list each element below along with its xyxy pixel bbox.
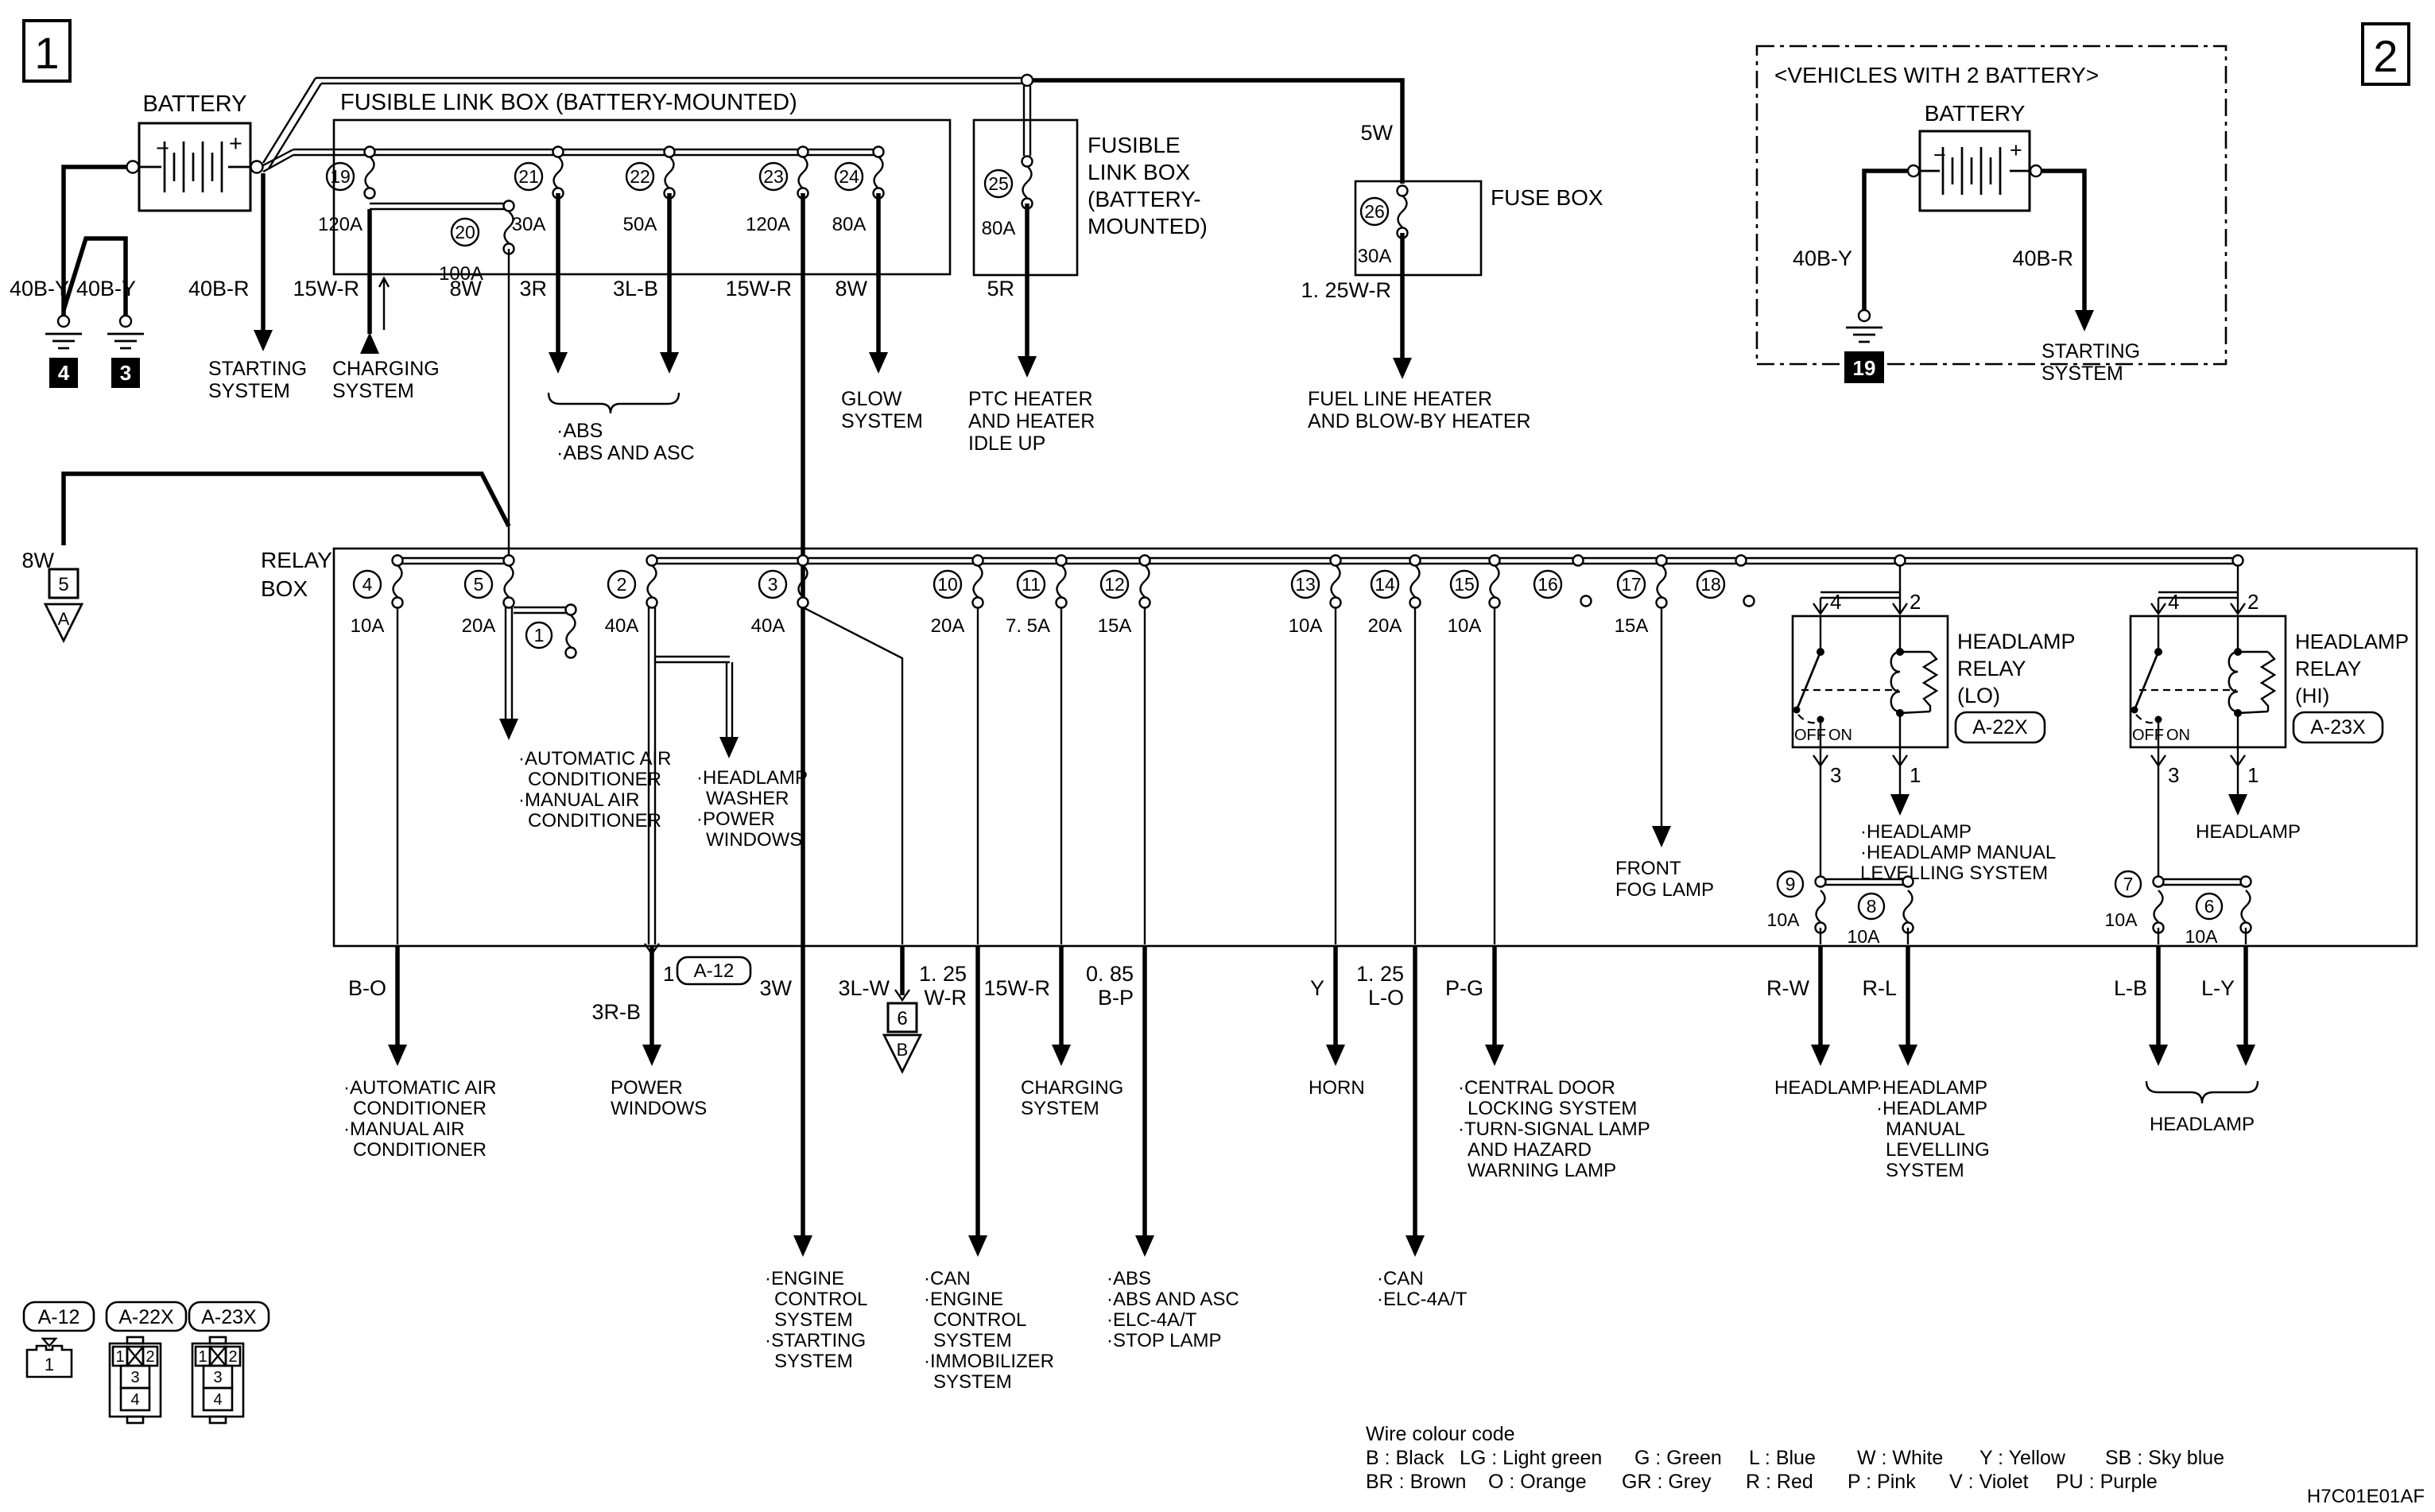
- wire-label: 3L-B: [613, 277, 658, 300]
- system-label: HEADLAMP: [2196, 821, 2301, 843]
- arrow-icon: [2228, 794, 2247, 816]
- system-label: ·ELC-4A/T: [1107, 1309, 1197, 1331]
- page-number: 2: [2373, 31, 2398, 81]
- box-title: LINK BOX: [1088, 160, 1190, 184]
- system-label: FOG LAMP: [1615, 879, 1714, 901]
- system-label: FUEL LINE HEATER: [1308, 388, 1492, 410]
- wire-label: 15W-R: [725, 277, 792, 300]
- fuse-number: 25: [988, 173, 1009, 194]
- wire-label: 40B-R: [2012, 246, 2073, 270]
- system-label: CHARGING: [1021, 1077, 1123, 1099]
- box-title: MOUNTED): [1088, 214, 1208, 238]
- wire-label: 3L-W: [838, 976, 890, 1000]
- system-label: ·ENGINE: [765, 1268, 844, 1289]
- fuse-10: 10 20A: [931, 565, 983, 637]
- system-label: ·CENTRAL DOOR: [1458, 1077, 1615, 1099]
- system-label: ·HEADLAMP: [696, 767, 808, 789]
- arrow-icon: [1052, 1045, 1071, 1066]
- pin-number: 4: [1830, 590, 1841, 614]
- colour-code: Y : Yellow: [1979, 1447, 2066, 1469]
- wire-label: 15W-R: [293, 277, 359, 300]
- fuse-number: 23: [763, 166, 784, 187]
- system-label: CONDITIONER: [528, 810, 661, 832]
- pin-number: 2: [2247, 590, 2259, 614]
- system-label: SYSTEM: [774, 1309, 853, 1331]
- pin-number: 1: [2247, 763, 2259, 787]
- wire-label: Y: [1310, 976, 1324, 1000]
- relay-title: HEADLAMP: [1957, 630, 2076, 653]
- system-label: SYSTEM: [1021, 1098, 1099, 1119]
- fuse-1: 1: [514, 605, 576, 658]
- box-title: BOX: [261, 576, 308, 601]
- wire-label: 15W-R: [983, 976, 1050, 1000]
- system-label: AND HEATER: [968, 410, 1095, 432]
- system-label: CONDITIONER: [528, 769, 661, 790]
- fuse-number: 14: [1375, 574, 1395, 595]
- wire-label: L-Y: [2201, 976, 2235, 1000]
- arrow-icon: [2236, 1045, 2255, 1066]
- wire-label: 40B-Y: [1793, 246, 1852, 270]
- system-label: ·ABS AND ASC: [556, 442, 695, 464]
- system-label: WINDOWS: [611, 1098, 707, 1119]
- connector-code: A-22X: [118, 1306, 174, 1328]
- system-label: ·HEADLAMP: [1876, 1077, 1987, 1099]
- colour-code: L : Blue: [1749, 1447, 1816, 1469]
- fuse-number: 6: [2204, 896, 2215, 917]
- fuse-number: 22: [630, 166, 650, 187]
- arrow-icon: [388, 1045, 407, 1066]
- fuse-number: 2: [617, 574, 627, 595]
- fuse-11: 11 7. 5A: [1006, 565, 1067, 637]
- colour-code: G : Green: [1634, 1447, 1722, 1469]
- wire-label: B-P: [1098, 986, 1134, 1010]
- system-label: ·POWER: [696, 808, 775, 830]
- system-label: CONDITIONER: [353, 1098, 487, 1119]
- connector-code: A-22X: [1972, 716, 2028, 739]
- colour-code: W : White: [1857, 1447, 1943, 1469]
- pin-number: 1: [198, 1348, 207, 1366]
- wire-label: 8W: [450, 277, 483, 300]
- fuse-number: 20: [455, 222, 475, 242]
- system-label: STARTING: [208, 358, 307, 380]
- fuse-number: 12: [1104, 574, 1125, 595]
- pin-number: 1: [115, 1348, 124, 1366]
- ground-icon: [1846, 328, 1882, 342]
- fuse-number: 26: [1364, 201, 1385, 222]
- system-label: SYSTEM: [933, 1371, 1012, 1393]
- arrow-icon: [1135, 1235, 1154, 1257]
- fusible-link-box-2: 25 80A FUSIBLE LINK BOX (BATTERY- MOUNTE…: [968, 86, 1208, 455]
- connector-legend: A-12 1 A-22X 1 2 3 4 A-23X 1 2 3 4: [24, 1302, 269, 1423]
- fuse-21: 21 30A: [512, 147, 564, 236]
- fuse-amp: 120A: [318, 214, 363, 235]
- connector-ref: A: [58, 609, 70, 629]
- fuse-4: 4 10A: [351, 565, 403, 637]
- system-label: ·ABS: [556, 420, 603, 442]
- system-label: AND HAZARD: [1468, 1139, 1592, 1161]
- system-label: STARTING: [2041, 340, 2140, 362]
- pin-number: 1: [45, 1355, 54, 1374]
- wire-label: R-L: [1862, 976, 1897, 1000]
- fuse-24: 24 80A: [832, 147, 884, 236]
- colour-code: B : Black: [1366, 1447, 1444, 1469]
- system-label: ·AUTOMATIC AIR: [343, 1077, 496, 1099]
- legend-title: Wire colour code: [1366, 1423, 1515, 1445]
- fuse-12: 12 15A: [1098, 565, 1150, 637]
- system-label: ·IMMOBILIZER: [924, 1351, 1054, 1372]
- pin-number: 2: [228, 1348, 237, 1366]
- system-label: AND BLOW-BY HEATER: [1308, 410, 1531, 432]
- fuse-amp: 120A: [746, 214, 790, 235]
- arrow-icon: [1018, 356, 1037, 378]
- fuse-amp: 10A: [1289, 615, 1323, 637]
- fuse-amp: 80A: [832, 214, 867, 235]
- system-label: ·MANUAL AIR: [343, 1118, 464, 1140]
- colour-code: O : Orange: [1488, 1471, 1587, 1493]
- fuse-number: 16: [1537, 574, 1558, 595]
- fuse-number: 5: [474, 574, 484, 595]
- system-label: ·HEADLAMP MANUAL: [1860, 842, 2056, 863]
- system-label: WASHER: [706, 788, 789, 809]
- colour-code: P : Pink: [1848, 1471, 1916, 1493]
- relay-title: (HI): [2295, 684, 2329, 708]
- wire-label: 5W: [1361, 121, 1394, 145]
- fusible-link-box-1: FUSIBLE LINK BOX (BATTERY-MOUNTED) 19 12…: [318, 90, 950, 285]
- system-label: SYSTEM: [774, 1351, 853, 1372]
- fuse-number: 13: [1295, 574, 1316, 595]
- headlamp-relay-hi: 4 2 OFF ON 3 1 HEADLAMP HEADLAMP RELAY (…: [2105, 565, 2410, 947]
- arrow-icon: [499, 719, 518, 740]
- arrow-icon: [549, 352, 568, 374]
- pin-number: 3: [1830, 763, 1841, 787]
- system-label: LEVELLING SYSTEM: [1860, 863, 2048, 884]
- box-title: FUSIBLE LINK BOX (BATTERY-MOUNTED): [340, 90, 797, 115]
- ground-ref: 19: [1853, 356, 1876, 380]
- wire-label: L-O: [1368, 986, 1404, 1010]
- colour-code: GR : Grey: [1622, 1471, 1712, 1493]
- system-label: HORN: [1309, 1077, 1365, 1099]
- relay-title: RELAY: [1957, 657, 2026, 680]
- system-label: ·TURN-SIGNAL LAMP: [1458, 1118, 1650, 1140]
- arrow-icon: [1393, 358, 1412, 379]
- system-label: HEADLAMP: [1774, 1077, 1879, 1099]
- system-label: ·MANUAL AIR: [518, 789, 639, 811]
- battery-1: BATTERY − +: [127, 91, 263, 211]
- arrow-icon: [1652, 826, 1671, 847]
- fuse-amp: 20A: [931, 615, 965, 637]
- system-label: ·HEADLAMP: [1860, 821, 1972, 843]
- pin-number: 4: [213, 1391, 222, 1409]
- relay-on-label: ON: [2166, 727, 2190, 744]
- minus-sign: −: [156, 136, 169, 161]
- system-label: ·ABS: [1107, 1268, 1151, 1289]
- fuse-amp: 7. 5A: [1006, 615, 1050, 637]
- fuse-amp: 10A: [2185, 926, 2219, 947]
- arrow-icon: [1811, 1045, 1830, 1066]
- fuse-number: 7: [2123, 874, 2134, 894]
- fuse-17: 17 15A: [1615, 565, 1667, 637]
- wire-label: P-G: [1445, 976, 1483, 1000]
- arrow-icon: [1326, 1045, 1345, 1066]
- connector-ref: 5: [58, 574, 68, 595]
- ground-ref: 4: [58, 361, 70, 385]
- pin-number: 4: [130, 1391, 139, 1409]
- fuse-15: 15 10A: [1448, 565, 1500, 637]
- fuse-26: 26 30A: [1358, 186, 1408, 268]
- system-label: PTC HEATER: [968, 388, 1093, 410]
- wire-label: 40B-Y: [10, 277, 69, 300]
- system-label: WARNING LAMP: [1468, 1160, 1616, 1181]
- system-label: IDLE UP: [968, 432, 1045, 455]
- arrow-icon: [968, 1235, 987, 1257]
- box-title: RELAY: [261, 548, 332, 572]
- colour-code: SB : Sky blue: [2105, 1447, 2224, 1469]
- system-label: ·STARTING: [765, 1330, 866, 1351]
- arrow-icon: [254, 330, 273, 351]
- arrow-icon: [869, 352, 888, 374]
- wire-label: L-B: [2114, 976, 2147, 1000]
- arrow-icon: [642, 1045, 661, 1066]
- wire-colour-code: Wire colour code B : Black LG : Light gr…: [1366, 1423, 2224, 1493]
- arrow-icon: [1898, 1045, 1917, 1066]
- fuse-amp: 10A: [2105, 909, 2138, 930]
- wire-label: 1. 25: [1356, 962, 1404, 986]
- colour-code: R : Red: [1746, 1471, 1813, 1493]
- resistor-icon: [1924, 652, 1937, 711]
- system-label: GLOW: [841, 388, 902, 410]
- pin-number: 3: [130, 1369, 139, 1386]
- fuse-19: 19 120A: [318, 147, 375, 236]
- doc-code: H7C01E01AF: [2307, 1486, 2425, 1507]
- resistor-icon: [2262, 652, 2274, 711]
- connector-a12-icon: 1: [27, 1339, 72, 1377]
- pin-number: 1: [1910, 763, 1921, 787]
- system-label: WINDOWS: [706, 829, 802, 851]
- wire-label: 1. 25: [919, 962, 967, 986]
- system-label: ·ENGINE: [924, 1289, 1003, 1310]
- wire-label: 1. 25W-R: [1301, 278, 1391, 302]
- arrow-icon: [1406, 1235, 1425, 1257]
- system-label: SYSTEM: [2041, 362, 2123, 385]
- fuse-amp: 40A: [605, 615, 639, 637]
- plus-sign: +: [229, 131, 242, 157]
- system-label: ·CAN: [1377, 1268, 1424, 1289]
- system-label: ·ABS AND ASC: [1107, 1289, 1239, 1310]
- vehicles-with-2-battery: <VEHICLES WITH 2 BATTERY> BATTERY − + 19…: [1757, 46, 2226, 385]
- wire-label: 0. 85: [1086, 962, 1134, 986]
- colour-code: PU : Purple: [2056, 1471, 2158, 1493]
- fuse-number: 24: [839, 166, 859, 187]
- wire-label: 3R-B: [591, 1000, 641, 1024]
- fuse-amp: 20A: [462, 615, 496, 637]
- colour-code: LG : Light green: [1460, 1447, 1602, 1469]
- fuse-number: 10: [937, 574, 958, 595]
- fuse-23: 23 120A: [746, 147, 808, 236]
- system-label: SYSTEM: [208, 380, 290, 402]
- ground-ref: 3: [120, 361, 131, 385]
- ground-icon: [45, 334, 82, 348]
- arrow-icon: [660, 352, 679, 374]
- battery-title: BATTERY: [1925, 101, 2026, 126]
- system-label: LOCKING SYSTEM: [1468, 1098, 1637, 1119]
- fuse-16: 16: [1534, 571, 1592, 607]
- relay-title: (LO): [1957, 684, 2000, 708]
- fuse-number: 3: [768, 574, 778, 595]
- headlamp-relay-lo: 4 2 OFF ON 3 1 ·HEADLAMP ·HEADLAMP MANUA…: [1767, 565, 2076, 947]
- fuse-number: 21: [518, 166, 539, 187]
- fuse-number: 19: [330, 166, 351, 187]
- fuse-amp: 50A: [623, 214, 657, 235]
- pin-number: 3: [213, 1369, 222, 1386]
- system-label: LEVELLING: [1886, 1139, 1990, 1161]
- fuse-amp: 10A: [1448, 615, 1482, 637]
- system-label: ·ELC-4A/T: [1377, 1289, 1468, 1310]
- system-label: ·CAN: [924, 1268, 971, 1289]
- bottom-outputs: B-O ·AUTOMATIC AIR CONDITIONER ·MANUAL A…: [343, 944, 2258, 1393]
- arrow-icon: [360, 332, 379, 354]
- fuse-14: 14 20A: [1368, 565, 1421, 637]
- page-number: 1: [34, 28, 59, 78]
- system-label: SYSTEM: [332, 380, 414, 402]
- fuse-3: 3 40A: [751, 565, 808, 637]
- fuse-box: FUSE BOX 26 30A 1. 25W-R FUEL LINE HEATE…: [1301, 181, 1603, 432]
- battery-1-ground-wires: 4 3 40B-Y 40B-Y: [10, 167, 144, 388]
- colour-code: BR : Brown: [1366, 1471, 1466, 1493]
- wire-label: B-O: [348, 976, 386, 1000]
- arrow-icon: [719, 737, 739, 758]
- fuse-6: 6 10A: [2185, 890, 2251, 947]
- wire-label: 8W: [836, 277, 868, 300]
- relay-title: HEADLAMP: [2295, 630, 2409, 653]
- pin-number: 2: [145, 1348, 154, 1366]
- arrow-icon: [2149, 1045, 2168, 1066]
- coil-icon: [1891, 652, 1900, 711]
- system-label: MANUAL: [1886, 1118, 1965, 1140]
- relay-box: RELAY BOX 4 10A 5 20A 1 2 40A 3 40A: [261, 548, 2417, 946]
- system-label: ·HEADLAMP: [1876, 1098, 1987, 1119]
- connector-ref: 6: [897, 1008, 907, 1029]
- fuse-number: 18: [1700, 574, 1721, 595]
- arrow-icon: [1890, 794, 1910, 816]
- fuse-amp: 30A: [1358, 246, 1392, 267]
- relay-on-label: ON: [1828, 727, 1852, 744]
- fuse-amp: 40A: [751, 615, 785, 637]
- fuse-number: 9: [1786, 874, 1796, 894]
- wire-label: 3W: [760, 976, 793, 1000]
- fuse-number: 8: [1867, 896, 1877, 917]
- wire-label: 5R: [987, 277, 1014, 300]
- arrow-icon: [2075, 310, 2094, 331]
- fuse-number: 15: [1454, 574, 1475, 595]
- flb1-outputs: 15W-R CHARGING SYSTEM 8W 3R 3L-B ·ABS ·A…: [293, 193, 922, 944]
- system-label: HEADLAMP: [2150, 1114, 2255, 1135]
- connector-ref: B: [897, 1040, 909, 1060]
- box-title: FUSIBLE: [1088, 133, 1181, 157]
- section-title: <VEHICLES WITH 2 BATTERY>: [1774, 63, 2099, 87]
- system-label: ·STOP LAMP: [1107, 1330, 1222, 1351]
- arrow-icon: [1485, 1045, 1504, 1066]
- fuse-number: 4: [363, 574, 373, 595]
- system-label: POWER: [611, 1077, 683, 1099]
- pin-number: 3: [2168, 763, 2179, 787]
- fuse-amp: 10A: [1848, 926, 1881, 947]
- wire-label: W-R: [925, 986, 967, 1010]
- colour-code: V : Violet: [1949, 1471, 2029, 1493]
- connector-code: A-12: [694, 960, 735, 982]
- system-label: SYSTEM: [841, 410, 923, 432]
- system-label: SYSTEM: [933, 1330, 1012, 1351]
- system-label: CONTROL: [933, 1309, 1026, 1331]
- fuse-amp: 20A: [1368, 615, 1402, 637]
- system-label: SYSTEM: [1886, 1160, 1964, 1181]
- fuse-8: 8 10A: [1848, 890, 1913, 947]
- fuse-number: 11: [1022, 574, 1041, 595]
- brace-icon: [549, 393, 679, 413]
- system-label: CONDITIONER: [353, 1139, 487, 1161]
- arrow-icon: [793, 1235, 812, 1257]
- plus-sign: +: [2010, 138, 2022, 162]
- fuse-amp: 15A: [1615, 615, 1649, 637]
- wire-label: 40B-Y: [76, 277, 136, 300]
- pin-number: 2: [1910, 590, 1921, 614]
- connector-code: A-23X: [2310, 716, 2366, 739]
- fuse-13: 13 10A: [1289, 565, 1341, 637]
- system-label: CONTROL: [774, 1289, 867, 1310]
- connector-a22x-icon: 1 2 3 4: [110, 1337, 161, 1423]
- fuse-amp: 30A: [512, 214, 546, 235]
- wire-label: 40B-R: [188, 277, 250, 300]
- fuse-amp: 10A: [351, 615, 385, 637]
- fuse-amp: 15A: [1098, 615, 1132, 637]
- wire-label: 3R: [519, 277, 547, 300]
- fuse-number: 1: [534, 625, 545, 646]
- ground-icon: [107, 334, 144, 348]
- fuse-25: 25 80A: [982, 166, 1033, 239]
- wiring-diagram: 1 2 BATTERY − + 4 3 40B-Y 40B-Y 40B-R ST…: [0, 0, 2435, 1512]
- brace-icon: [2146, 1081, 2258, 1103]
- connector-code: A-23X: [201, 1306, 257, 1328]
- coil-icon: [2229, 652, 2238, 711]
- minus-sign: −: [1933, 143, 1946, 167]
- page-marker-1: 1: [24, 21, 70, 81]
- system-label: FRONT: [1615, 858, 1681, 879]
- fuse-amp: 80A: [982, 218, 1016, 239]
- pin-number: 1: [663, 962, 674, 986]
- connector-a23x-icon: 1 2 3 4: [192, 1337, 243, 1423]
- box-title: FUSE BOX: [1491, 185, 1603, 210]
- battery-title: BATTERY: [142, 91, 246, 117]
- fuse-amp: 10A: [1767, 909, 1801, 930]
- fuse-number: 17: [1621, 574, 1642, 595]
- connector-code: A-12: [38, 1306, 80, 1328]
- fuse-22: 22 50A: [623, 147, 675, 236]
- system-label: CHARGING: [332, 358, 440, 380]
- page-marker-2: 2: [2363, 24, 2409, 84]
- relay-title: RELAY: [2295, 657, 2361, 680]
- fuse-18: 18: [1697, 571, 1755, 607]
- box-title: (BATTERY-: [1088, 187, 1201, 211]
- wire-label: R-W: [1766, 976, 1809, 1000]
- pin-number: 4: [2168, 590, 2179, 614]
